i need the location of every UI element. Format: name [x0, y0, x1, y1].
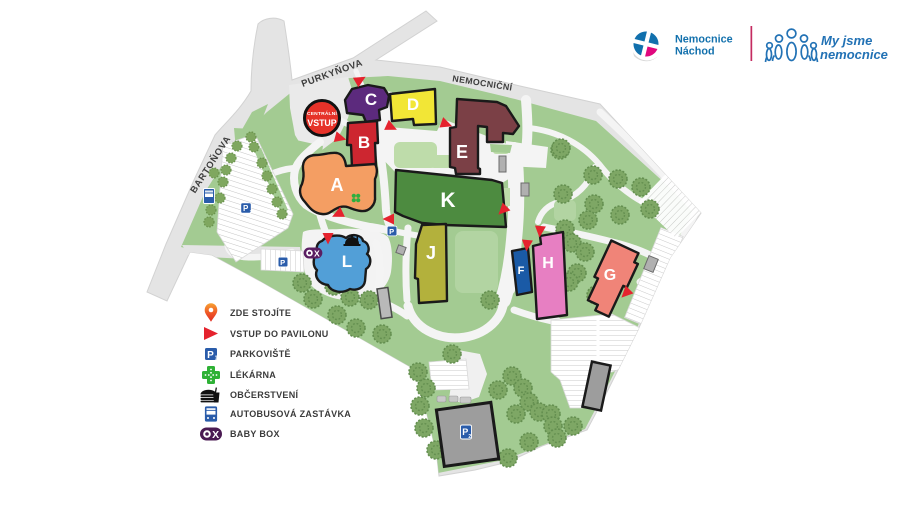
svg-text:OBČERSTVENÍ: OBČERSTVENÍ [230, 389, 299, 400]
svg-text:B: B [358, 133, 370, 152]
svg-text:BABY BOX: BABY BOX [230, 429, 280, 439]
svg-text:A: A [331, 175, 344, 195]
svg-text:My jsme: My jsme [821, 33, 872, 48]
svg-text:Nemocnice: Nemocnice [675, 34, 733, 46]
svg-text:D: D [407, 95, 419, 114]
svg-text:H: H [542, 255, 554, 272]
svg-text:C: C [365, 90, 377, 109]
svg-text:P: P [462, 427, 468, 437]
svg-text:AUTOBUSOVÁ ZASTÁVKA: AUTOBUSOVÁ ZASTÁVKA [230, 409, 351, 419]
svg-text:K: K [440, 189, 455, 212]
svg-text:1: 1 [215, 355, 218, 361]
svg-text:X: X [314, 248, 320, 258]
svg-text:VSTUP: VSTUP [307, 118, 336, 128]
svg-text:nemocnice: nemocnice [820, 47, 888, 62]
svg-text:LÉKÁRNA: LÉKÁRNA [230, 370, 276, 380]
svg-text:X: X [212, 429, 219, 441]
svg-text:F: F [518, 265, 525, 277]
svg-text:2: 2 [468, 434, 471, 440]
svg-text:E: E [456, 142, 468, 162]
svg-text:J: J [426, 243, 436, 263]
svg-text:ZDE STOJÍTE: ZDE STOJÍTE [230, 308, 291, 318]
svg-text:PARKOVIŠTĚ: PARKOVIŠTĚ [230, 348, 291, 359]
svg-text:VSTUP DO PAVILONU: VSTUP DO PAVILONU [230, 329, 329, 339]
svg-text:G: G [604, 267, 616, 284]
svg-text:Náchod: Náchod [675, 46, 715, 58]
svg-text:L: L [342, 252, 352, 271]
